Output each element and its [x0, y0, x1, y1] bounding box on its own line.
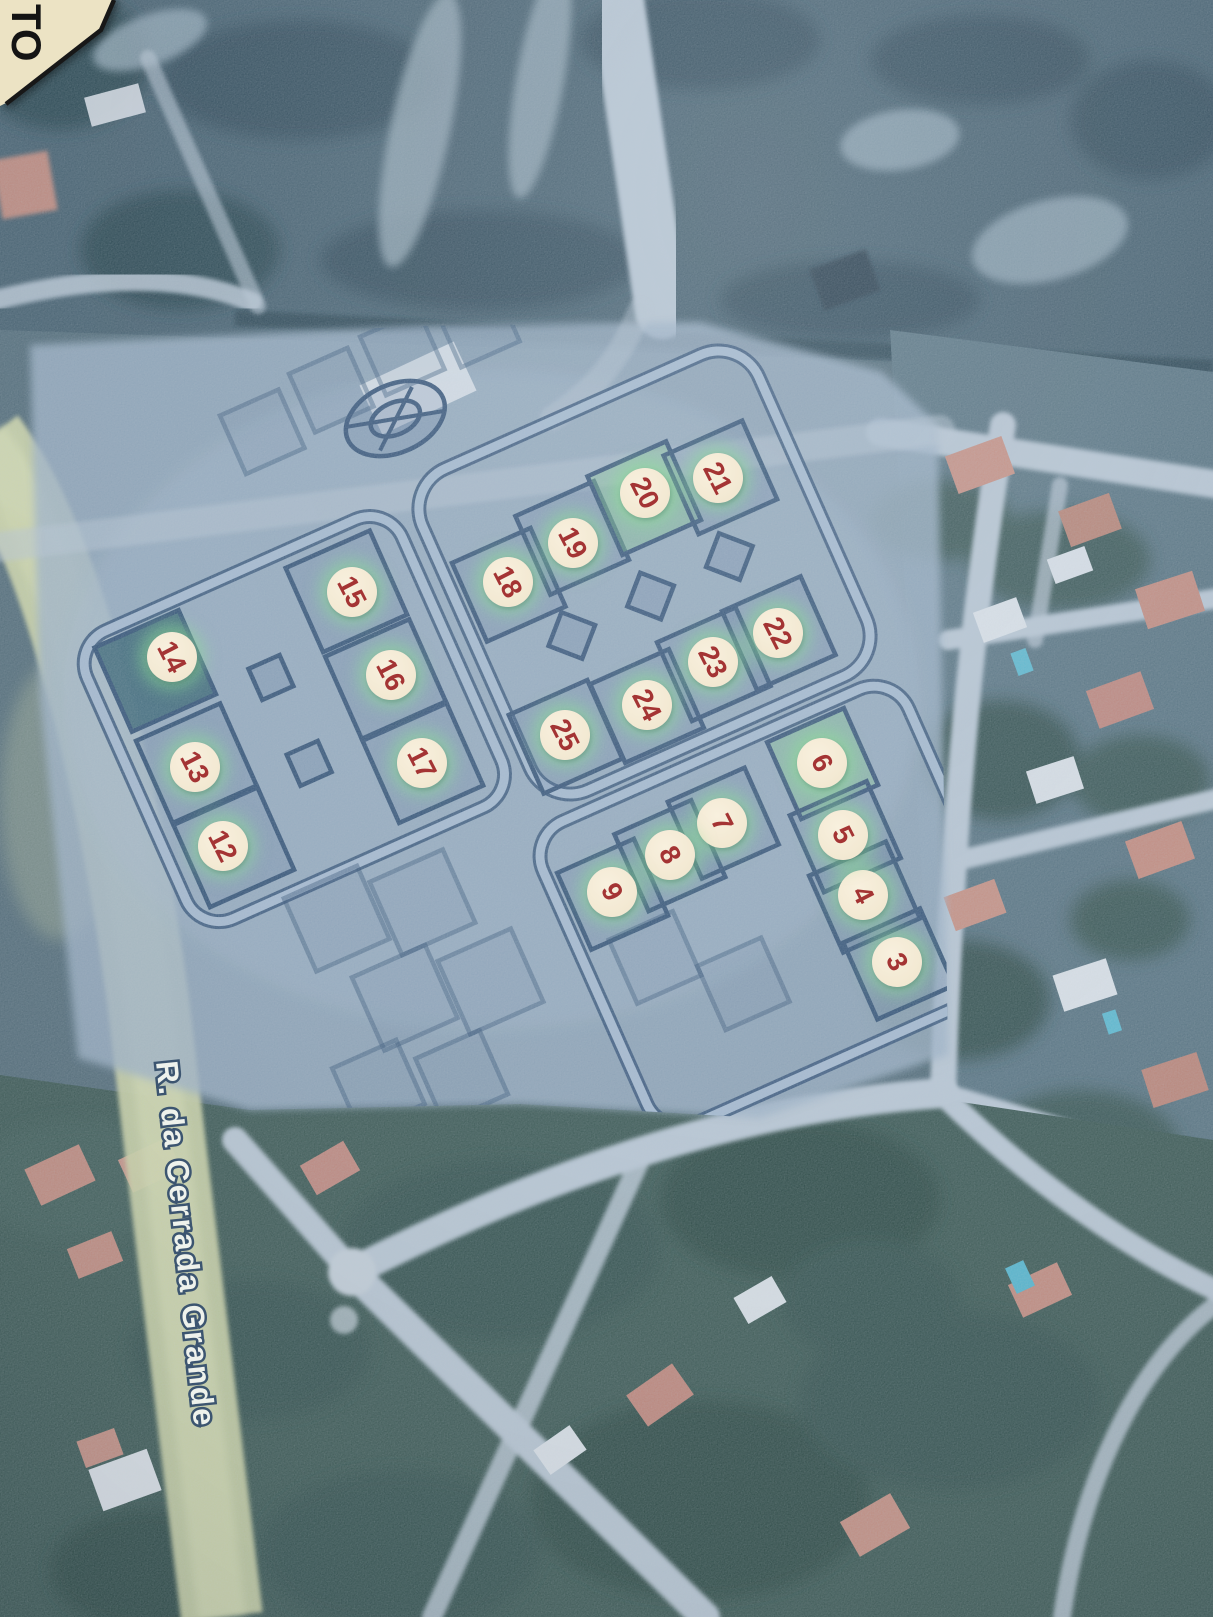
lot-marker-6[interactable]: 6 — [797, 738, 847, 788]
lot-marker-number: 16 — [371, 655, 410, 695]
aerial-photo-art: R. da Cerrada Grande TO — [0, 0, 1213, 1617]
lot-marker-number: 23 — [693, 642, 732, 682]
lot-marker-number: 8 — [654, 842, 686, 869]
lot-marker-number: 17 — [402, 743, 441, 783]
lot-marker-number: 24 — [627, 685, 666, 725]
corner-note-text: TO — [3, 4, 50, 62]
lot-marker-number: 4 — [847, 882, 879, 909]
lot-marker-21[interactable]: 21 — [693, 453, 743, 503]
lot-marker-number: 21 — [698, 458, 737, 498]
lot-marker-15[interactable]: 15 — [327, 567, 377, 617]
lot-marker-23[interactable]: 23 — [688, 637, 738, 687]
lot-marker-number: 25 — [545, 715, 584, 755]
lot-marker-number: 14 — [152, 637, 191, 677]
lot-marker-number: 9 — [596, 879, 628, 906]
lot-marker-5[interactable]: 5 — [818, 810, 868, 860]
lot-marker-19[interactable]: 19 — [548, 518, 598, 568]
lot-marker-7[interactable]: 7 — [697, 798, 747, 848]
lot-marker-number: 20 — [625, 473, 664, 513]
lot-marker-18[interactable]: 18 — [483, 557, 533, 607]
lot-marker-4[interactable]: 4 — [838, 870, 888, 920]
lot-marker-number: 13 — [175, 747, 214, 787]
aerial-photo: R. da Cerrada Grande TO 3456789121314151… — [0, 0, 1213, 1617]
lot-marker-number: 12 — [203, 826, 242, 866]
lot-marker-25[interactable]: 25 — [540, 710, 590, 760]
lot-marker-16[interactable]: 16 — [366, 650, 416, 700]
lot-marker-17[interactable]: 17 — [397, 738, 447, 788]
lot-marker-number: 18 — [488, 562, 527, 602]
lot-marker-9[interactable]: 9 — [587, 867, 637, 917]
lot-marker-20[interactable]: 20 — [620, 468, 670, 518]
lot-marker-14[interactable]: 14 — [147, 632, 197, 682]
lot-marker-number: 15 — [332, 572, 371, 612]
lot-marker-number: 19 — [553, 523, 592, 563]
lot-marker-12[interactable]: 12 — [198, 821, 248, 871]
lot-marker-number: 6 — [806, 750, 838, 777]
lot-marker-3[interactable]: 3 — [872, 937, 922, 987]
lot-marker-number: 7 — [706, 810, 738, 837]
lot-marker-number: 3 — [881, 949, 913, 976]
lot-marker-number: 5 — [827, 822, 859, 849]
lot-marker-24[interactable]: 24 — [622, 680, 672, 730]
lot-marker-13[interactable]: 13 — [170, 742, 220, 792]
lot-marker-22[interactable]: 22 — [753, 608, 803, 658]
lot-marker-number: 22 — [758, 613, 797, 653]
lot-marker-8[interactable]: 8 — [645, 830, 695, 880]
